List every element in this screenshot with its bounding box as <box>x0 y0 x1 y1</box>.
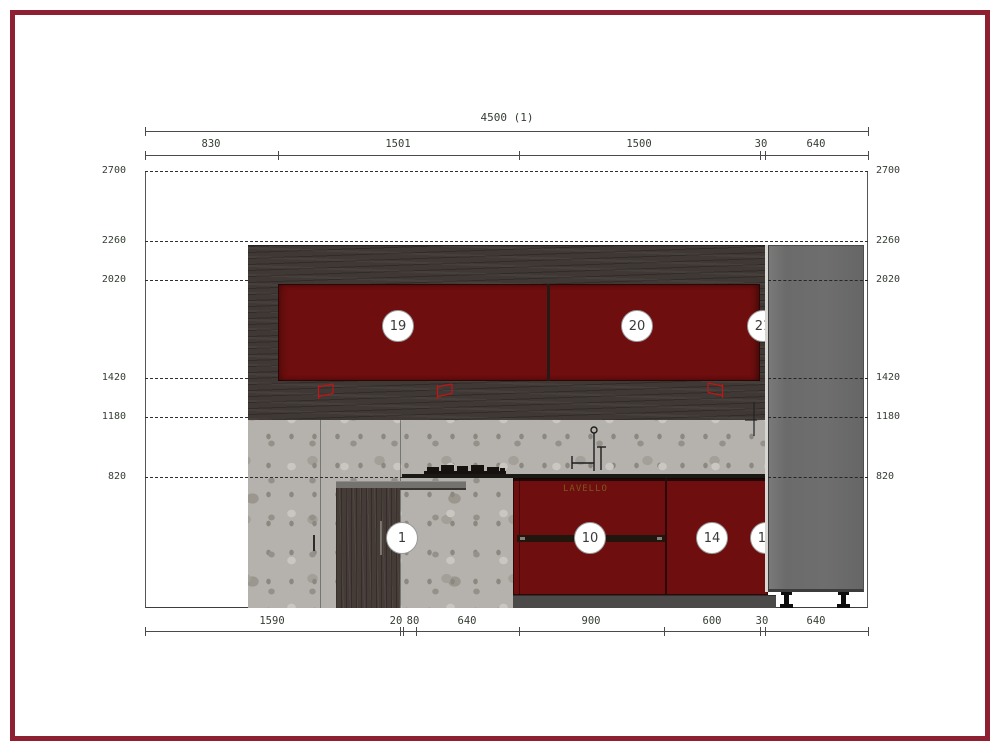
level-dash-line <box>145 241 868 242</box>
top-dimension-value: 30 <box>755 138 768 150</box>
dimension-tick <box>519 151 520 160</box>
bottom-dimension-value: 30 <box>756 615 769 627</box>
dimension-tick <box>868 127 869 136</box>
item-circle-wall-unit-20: 20 <box>621 310 653 342</box>
bottom-dimension-value: 640 <box>458 615 477 627</box>
bottom-dimension-value: 640 <box>807 615 826 627</box>
door-swing-icon <box>436 383 454 401</box>
level-dash-line <box>145 171 868 172</box>
level-label-right: 820 <box>876 471 916 483</box>
dimension-tick <box>278 151 279 160</box>
door-swing-icon <box>317 383 335 401</box>
level-label-left: 2020 <box>86 274 126 286</box>
faucet-icon <box>565 424 610 472</box>
overall-dimension-line <box>145 131 868 132</box>
section-marker-icon <box>744 400 758 438</box>
top-dimension-value: 830 <box>202 138 221 150</box>
drawer-handle <box>520 537 525 540</box>
dimension-tick <box>145 127 146 136</box>
kitchen-elevation-sheet: LAVELLO 4500 (1) 27002700226022602020202… <box>0 0 1000 751</box>
dimension-tick <box>403 627 404 636</box>
dimension-tick <box>760 151 761 160</box>
upper-door-divider <box>547 284 550 381</box>
top-dimension-value: 1500 <box>626 138 651 150</box>
cabinet-foot-icon <box>836 592 852 608</box>
top-dimension-value: 640 <box>807 138 826 150</box>
item-circle-tall-column-1: 1 <box>386 522 418 554</box>
base-cabinet-divider <box>665 478 667 595</box>
sink-cabinet-label: LAVELLO <box>563 484 608 494</box>
concealed-door-handle <box>313 535 315 551</box>
level-dash-line <box>768 378 868 379</box>
door-swing-icon <box>706 382 724 400</box>
level-label-right: 2700 <box>876 165 916 177</box>
cooktop-icon <box>424 463 506 475</box>
dimension-tick <box>400 627 401 636</box>
dimension-tick <box>145 151 146 160</box>
terrazzo-joint <box>320 420 321 608</box>
level-label-left: 1180 <box>86 411 126 423</box>
dimension-tick <box>145 627 146 636</box>
level-label-left: 820 <box>86 471 126 483</box>
bottom-dimension-value: 20 <box>390 615 403 627</box>
dimension-tick <box>765 151 766 160</box>
level-label-right: 2260 <box>876 235 916 247</box>
dimension-tick <box>416 627 417 636</box>
dimension-tick <box>760 627 761 636</box>
level-label-right: 1180 <box>876 411 916 423</box>
level-label-left: 2700 <box>86 165 126 177</box>
dimension-tick <box>868 627 869 636</box>
column-handle-groove <box>380 521 382 555</box>
overall-dimension-label: 4500 (1) <box>481 112 534 124</box>
level-dash-line <box>768 417 868 418</box>
upper-doors-red <box>278 284 760 381</box>
dimension-tick <box>868 151 869 160</box>
cabinet-foot-icon <box>779 592 795 608</box>
level-label-right: 2020 <box>876 274 916 286</box>
item-circle-base-unit-14: 14 <box>696 522 728 554</box>
dimension-tick <box>664 627 665 636</box>
bottom-dimension-value: 900 <box>582 615 601 627</box>
tall-unit-side-panel <box>768 245 864 592</box>
dimension-tick <box>765 627 766 636</box>
bottom-dimension-value: 600 <box>703 615 722 627</box>
item-circle-wall-unit-19: 19 <box>382 310 414 342</box>
level-dash-line <box>768 477 868 478</box>
bottom-dimension-value: 80 <box>407 615 420 627</box>
base-cabinet-run: LAVELLO <box>513 478 768 595</box>
level-label-right: 1420 <box>876 372 916 384</box>
level-label-left: 1420 <box>86 372 126 384</box>
plinth <box>513 595 776 608</box>
dimension-tick <box>519 627 520 636</box>
level-dash-line <box>768 280 868 281</box>
level-label-left: 2260 <box>86 235 126 247</box>
drawer-handle <box>657 537 662 540</box>
item-circle-sink-base-10: 10 <box>574 522 606 554</box>
bottom-dimension-value: 1590 <box>259 615 284 627</box>
top-dimension-value: 1501 <box>385 138 410 150</box>
terrazzo-joint <box>400 420 401 608</box>
